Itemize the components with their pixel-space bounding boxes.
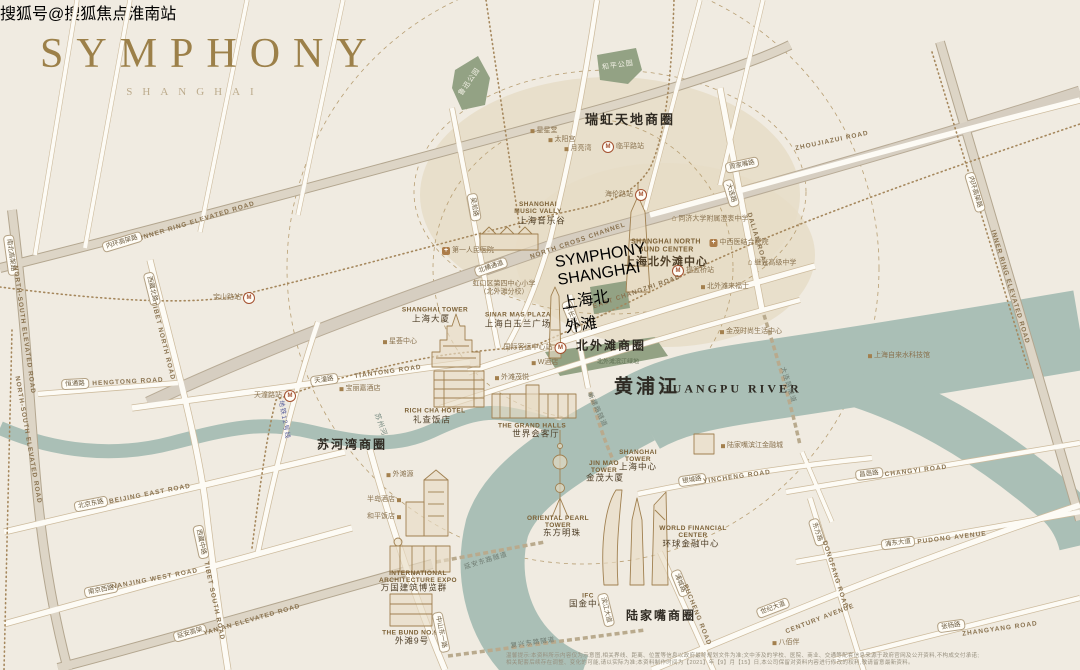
poi-dot-icon	[701, 285, 705, 289]
project-marker-card: SYMPHONY SHANGHAI 上海北外滩	[554, 246, 613, 288]
label-text: 金茂时尚生活中心	[726, 328, 782, 336]
label-text: 临平路站	[616, 143, 644, 151]
poi-dot-icon	[531, 129, 535, 133]
label-text: 外滩源	[393, 471, 414, 479]
poi-dot-icon	[387, 473, 391, 477]
poi-dot-icon	[549, 138, 553, 142]
map-label-poi-37: 月亮湾	[565, 145, 592, 153]
map-label-poi-49: 外滩源	[387, 471, 414, 479]
metro-linpinglu: M临平路站	[602, 141, 644, 153]
label-text: 宝丽嘉酒店	[346, 385, 381, 393]
poi-dot-icon	[721, 444, 725, 448]
symphony-logo: SYMPHONY SHANGHAI	[40, 30, 350, 98]
map-label-poi-45: 上海自来水科技馆	[868, 352, 930, 360]
map-label-lmcn-30: 上海中心	[619, 462, 657, 471]
map-label-lmcn-20: 世界会客厅	[512, 429, 560, 438]
label-text: 八佰伴	[779, 639, 800, 647]
map-label-lmen-31: WORLD FINANCIAL CENTER	[659, 525, 726, 539]
label-text: 同济大学附属澄衷中学	[678, 215, 748, 223]
logo-title: SYMPHONY	[40, 30, 350, 78]
label-text: 半岛酒店	[367, 496, 395, 504]
poi-dot-icon	[397, 515, 401, 519]
map-disclaimer-line1: 温馨提示:本资料所示内容仅为示意图,相关界线、距离、位置等信息以政府最终规划文件…	[506, 653, 979, 659]
map-label-poi-52: 陆家嘴滨江金融城	[721, 442, 783, 450]
school-icon: ⌂	[672, 215, 677, 224]
district-ruihong: 瑞虹天地商圈	[585, 113, 675, 127]
label-text: 太阳宫	[555, 136, 576, 144]
map-disclaimer-line2: 相关配套后续存在调整、变化的可能,请以实际为准;本资料制作时间为【2021】年【…	[506, 660, 914, 666]
metro-baoshanlu: 宝山路站M	[213, 292, 255, 304]
poi-dot-icon	[565, 147, 569, 151]
label-text: 星荟中心	[389, 338, 417, 346]
richcha-hotel-building	[434, 371, 484, 407]
lujiazui-towers	[603, 490, 668, 585]
hospital-cross-icon: +	[442, 247, 450, 255]
map-label-lmcn-16: 上海大厦	[412, 314, 450, 323]
label-text: 北外滩来福士	[707, 283, 749, 291]
school-icon: ⌂	[748, 259, 753, 268]
poi-dot-icon	[868, 354, 872, 358]
peace-hotel-building	[406, 470, 448, 536]
map-label-poi-51: 和平饭店	[367, 513, 401, 521]
hospital-cross-icon: +	[710, 239, 718, 247]
suzhou-creek	[0, 413, 585, 451]
label-text: 月亮湾	[571, 145, 592, 153]
map-label-poi-44: 金茂时尚生活中心	[720, 328, 782, 336]
logo-subtitle: SHANGHAI	[40, 86, 350, 98]
map-label-poi-48: 宝丽嘉酒店	[340, 385, 381, 393]
map-label-lmcn-24: 外滩9号	[395, 636, 429, 645]
label-text: 外滩茂悦	[501, 374, 529, 382]
label-text: 第一人民医院	[452, 247, 494, 255]
district-north-bund: 北外滩商圈	[576, 339, 646, 352]
map-label-road-77: 恒通路	[61, 378, 89, 390]
poi-dot-icon	[532, 361, 536, 365]
map-label-poi-36: 太阳宫	[549, 136, 576, 144]
map-label-poi-35: 星星堂	[531, 127, 558, 135]
map-label-lmcn-14: 上海白玉兰广场	[485, 319, 552, 328]
map-label-poi-47: 外滩茂悦	[495, 374, 529, 382]
huangpu-river-en: HUANGPU RIVER	[660, 382, 801, 395]
poi-dot-icon	[720, 330, 724, 334]
map-label-lmcn-32: 环球金融中心	[662, 539, 719, 548]
map-label-lmen-9: SHANGHAI MUSIC VALLY	[514, 201, 561, 215]
district-lujiazui: 陆家嘴商圈	[626, 609, 696, 622]
bund9-building	[390, 594, 432, 626]
map-label-lmcn-18: 礼查饭店	[413, 415, 451, 424]
map-label-poi-50: 半岛酒店	[367, 496, 401, 504]
district-suhewan: 苏河湾商圈	[317, 438, 387, 451]
map-label-lmcn-28: 金茂大厦	[586, 473, 624, 482]
map-label-schl-42: ⌂继光高级中学	[748, 259, 797, 268]
metro-icon: M	[635, 189, 647, 201]
label-text: 提篮桥站	[686, 267, 714, 275]
label-text: 宝山路站	[213, 294, 241, 302]
location-map: SYMPHONY SHANGHAI SYMPHONY SHANGHAI 上海北外…	[0, 0, 1080, 670]
map-label-poi-38: 星荟中心	[383, 338, 417, 346]
label-text: 上海自来水科技馆	[874, 352, 930, 360]
map-label-poi-43: 北外滩来福士	[701, 283, 749, 291]
map-label-hosp-55: +第一人民医院	[442, 247, 494, 255]
metro-tiantonglu: 天潼路站M	[254, 390, 296, 402]
metro-intl-cruise-terminal: 国际客运中心站M	[504, 342, 567, 354]
label-text: 和平饭店	[367, 513, 395, 521]
poi-dot-icon	[495, 376, 499, 380]
metro-icon: M	[602, 141, 614, 153]
label-text: 海伦路站	[605, 191, 633, 199]
metro-icon: M	[243, 292, 255, 304]
map-label-lmcn-10: 上海音乐谷	[518, 216, 566, 225]
architecture-expo-buildings	[390, 538, 450, 572]
metro-icon: M	[555, 342, 567, 354]
map-label-lmcn-26: 东方明珠	[543, 528, 581, 537]
poi-dot-icon	[773, 641, 777, 645]
poi-dot-icon	[383, 340, 387, 344]
map-label-lmcn-22: 万国建筑博览群	[381, 583, 448, 592]
map-label-poi-54: 北外滩滨江绿地	[597, 360, 639, 367]
metro-icon: M	[284, 390, 296, 402]
label-text: 天潼路站	[254, 392, 282, 400]
project-name-cn: 上海北外滩	[559, 282, 620, 338]
metro-hailunlu: 海伦路站M	[605, 189, 647, 201]
map-label-poi-46: W酒店	[532, 359, 559, 367]
map-label-poi-53: 八佰伴	[773, 639, 800, 647]
label-text: 星星堂	[537, 127, 558, 135]
binjiang-financial-building	[694, 434, 714, 454]
label-text: 陆家嘴滨江金融城	[727, 442, 783, 450]
poi-dot-icon	[397, 498, 401, 502]
map-label-schl-40: ⌂同济大学附属澄衷中学	[672, 215, 749, 224]
map-label-poi2-39: 虹口区第四中心小学 （北外滩分校）	[473, 280, 536, 295]
label-text: W酒店	[538, 359, 559, 367]
label-text: 国际客运中心站	[504, 344, 553, 352]
poi-dot-icon	[340, 387, 344, 391]
